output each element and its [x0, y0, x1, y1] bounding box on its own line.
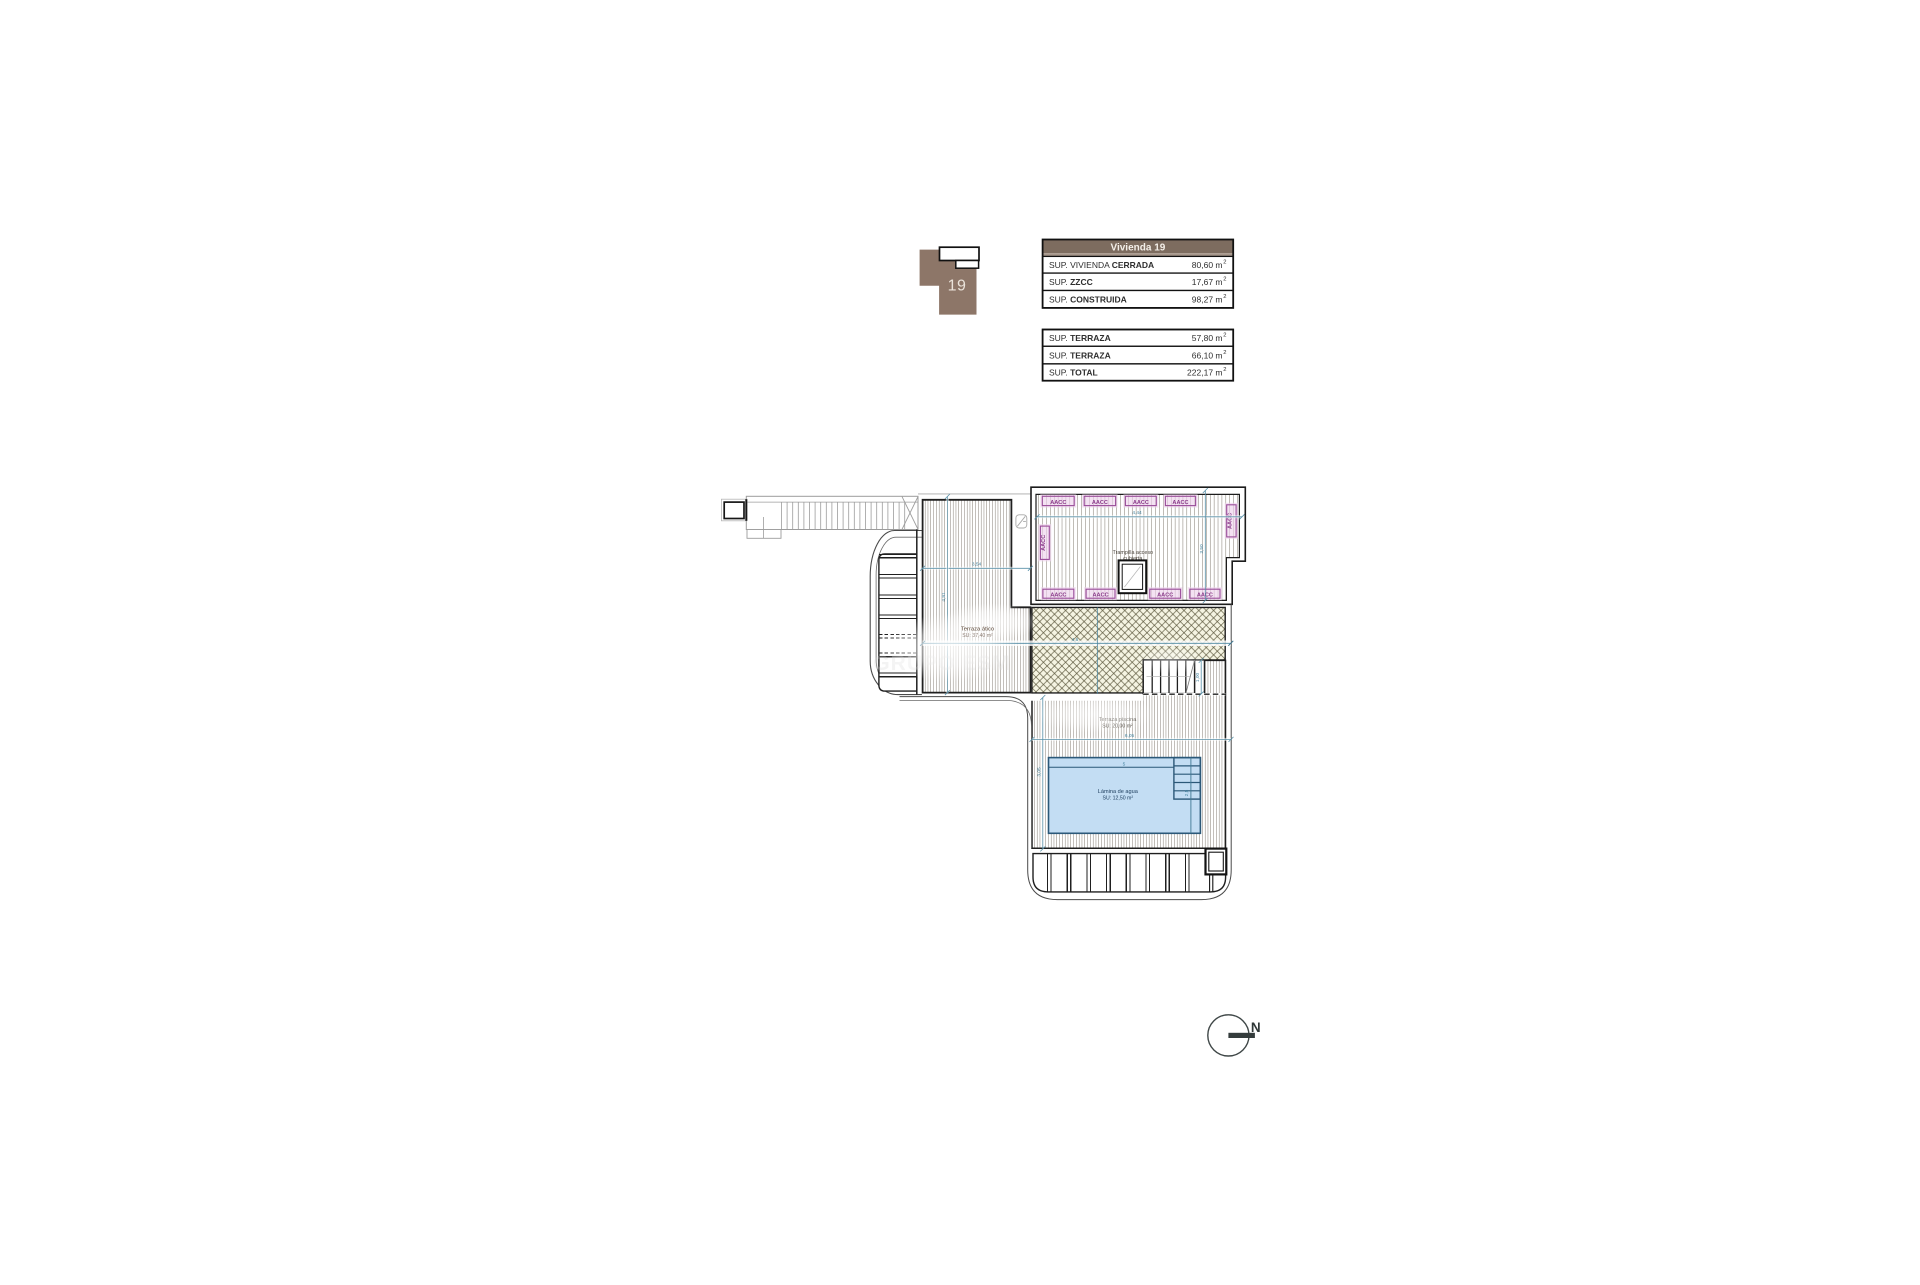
svg-text:Terraza ático: Terraza ático: [961, 627, 994, 633]
svg-text:222,17 m: 222,17 m: [1187, 368, 1222, 378]
svg-text:Lámina de agua: Lámina de agua: [1098, 789, 1139, 795]
svg-text:4,91: 4,91: [941, 592, 947, 602]
svg-text:SUP. TERRAZA: SUP. TERRAZA: [1049, 350, 1111, 360]
svg-text:AACC: AACC: [1050, 500, 1066, 506]
svg-text:1,00: 1,00: [1195, 673, 1201, 683]
svg-text:57,80 m: 57,80 m: [1192, 333, 1223, 343]
svg-text:17,67 m: 17,67 m: [1192, 277, 1223, 287]
svg-text:4,6: 4,6: [1072, 637, 1079, 643]
svg-text:SUP. TERRAZA: SUP. TERRAZA: [1049, 333, 1111, 343]
svg-text:SUP. ZZCC: SUP. ZZCC: [1049, 277, 1093, 287]
svg-text:3,50: 3,50: [1199, 544, 1205, 554]
svg-text:SU: 12,50 m²: SU: 12,50 m²: [1103, 795, 1134, 801]
svg-text:SUP. TOTAL: SUP. TOTAL: [1049, 368, 1098, 378]
svg-text:6,05: 6,05: [1125, 733, 1135, 739]
svg-text:19: 19: [948, 278, 967, 295]
svg-text:2: 2: [1223, 277, 1226, 283]
svg-text:SUP. VIVIENDA CERRADA: SUP. VIVIENDA CERRADA: [1049, 260, 1154, 270]
svg-text:AACC: AACC: [1227, 513, 1233, 529]
svg-text:AACC: AACC: [1133, 500, 1149, 506]
svg-text:2: 2: [1223, 259, 1226, 265]
svg-text:2: 2: [1223, 350, 1226, 356]
svg-text:N: N: [1251, 1020, 1261, 1035]
svg-text:AACC: AACC: [1093, 593, 1109, 599]
svg-text:AACC: AACC: [1172, 500, 1188, 506]
svg-text:3,54: 3,54: [972, 562, 982, 568]
svg-text:5: 5: [1123, 761, 1126, 767]
svg-text:2: 2: [1223, 294, 1226, 300]
svg-text:3,05: 3,05: [1036, 767, 1042, 777]
svg-text:AACC: AACC: [1050, 593, 1066, 599]
svg-text:SUP. CONSTRUIDA: SUP. CONSTRUIDA: [1049, 294, 1127, 304]
svg-text:98,27 m: 98,27 m: [1192, 294, 1223, 304]
svg-text:AACC: AACC: [1092, 500, 1108, 506]
svg-text:2: 2: [1223, 333, 1226, 339]
svg-text:SU: 37,40 m²: SU: 37,40 m²: [962, 633, 993, 639]
svg-text:2: 2: [1223, 367, 1226, 373]
svg-text:Vivienda 19: Vivienda 19: [1110, 243, 1165, 254]
svg-text:80,60 m: 80,60 m: [1192, 260, 1223, 270]
svg-text:2,5: 2,5: [1184, 789, 1190, 796]
svg-text:AACC: AACC: [1157, 593, 1173, 599]
svg-text:66,10 m: 66,10 m: [1192, 350, 1223, 360]
svg-text:AACC: AACC: [1041, 535, 1047, 551]
svg-text:4,44: 4,44: [1132, 510, 1142, 516]
